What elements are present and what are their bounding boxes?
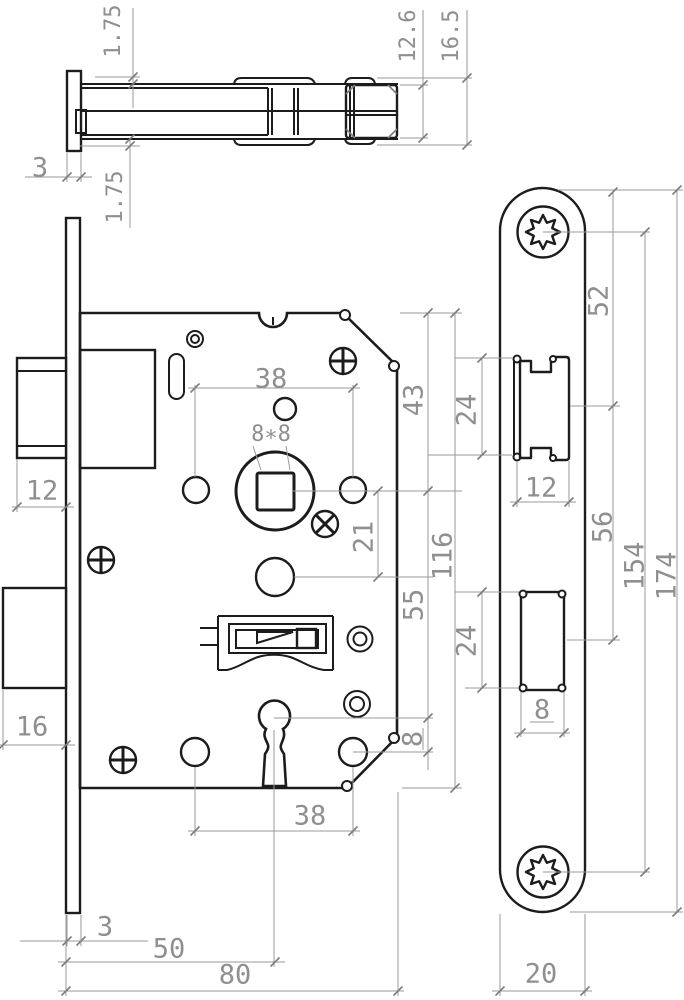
faceplate-view <box>500 188 585 912</box>
dim-latch-to-deadbolt-axis: 56 <box>588 511 619 544</box>
dim-spindle-square: 8∗8 <box>251 422 291 447</box>
front-view-lock-case <box>3 218 399 913</box>
dim-plate-thickness-top: 3 <box>32 153 48 184</box>
dim-top-to-spindle: 43 <box>399 384 430 417</box>
lower-hole-left <box>181 738 209 766</box>
deadbolt <box>3 588 66 688</box>
dim-case-depth: 80 <box>219 960 252 991</box>
dim-screw-hole-spacing: 154 <box>620 542 651 591</box>
dim-plate-thickness-bottom: 3 <box>97 912 113 943</box>
dim-top-to-latch-axis: 52 <box>584 285 615 318</box>
cylinder-hole <box>256 558 294 596</box>
chamfer-pin-bottom-left <box>342 781 352 791</box>
slider-wedge <box>257 632 293 643</box>
rivet-middle <box>348 627 373 652</box>
dim-latch-overall-height: 16.5 <box>439 10 464 63</box>
dim-lip-top: 1.75 <box>101 5 126 58</box>
phillips-screw-bottom <box>110 747 136 773</box>
dim-lip-bottom: 1.75 <box>103 171 128 224</box>
slider-mechanism <box>200 616 333 670</box>
dim-latch-body-height: 12.6 <box>396 10 421 63</box>
dim-plate-width: 20 <box>525 959 558 990</box>
dim-keyhole-to-holes: 8 <box>398 731 429 747</box>
phillips-screw-center <box>312 511 338 537</box>
dim-hole-spacing-bottom: 38 <box>294 801 327 832</box>
latch-center-block <box>268 88 298 135</box>
handle-hole-right <box>340 477 366 503</box>
phillips-screw-top <box>330 348 356 374</box>
faceplate-plate <box>500 188 585 912</box>
slider-stop <box>297 629 316 648</box>
chamfer-pin-top-right <box>389 361 399 371</box>
dim-hole-spacing-top: 38 <box>255 364 288 395</box>
latch-head-detail <box>346 85 397 138</box>
latch-bolt <box>17 358 66 458</box>
chamfer-pin-top-left <box>340 310 350 320</box>
oval-slot <box>169 354 184 399</box>
handle-hole-left <box>183 477 209 503</box>
dim-cylinder-to-keyhole: 55 <box>399 589 430 622</box>
slider-arch <box>218 655 333 670</box>
dim-latch-cutout-width: 12 <box>525 473 558 504</box>
mortise-lock-drawing: 1.75 12.6 16.5 3 1.75 38 8∗8 43 12 21 55… <box>0 0 684 1000</box>
top-view-latch-section <box>67 71 398 151</box>
upper-hole <box>274 398 296 420</box>
faceplate-front <box>66 218 80 913</box>
dim-backset: 50 <box>153 934 186 965</box>
dim-plate-length: 174 <box>652 552 683 601</box>
latch-follower-box <box>80 350 155 468</box>
dim-latch-bolt-width: 12 <box>26 476 59 507</box>
dim-case-height: 116 <box>428 532 459 581</box>
rivet-lower <box>344 691 370 717</box>
spindle-square-hole <box>257 473 294 510</box>
rivet-top <box>187 331 203 347</box>
technical-drawing-page: 1.75 12.6 16.5 3 1.75 38 8∗8 43 12 21 55… <box>0 0 684 1000</box>
dim-latch-cutout-height: 24 <box>452 394 483 427</box>
phillips-screw-left <box>88 547 114 573</box>
dim-spindle-to-cylinder: 21 <box>349 521 380 554</box>
dim-deadbolt-width: 16 <box>16 712 49 743</box>
dim-deadbolt-cutout-height: 24 <box>452 625 483 658</box>
dim-deadbolt-cutout-width: 8 <box>534 695 550 726</box>
